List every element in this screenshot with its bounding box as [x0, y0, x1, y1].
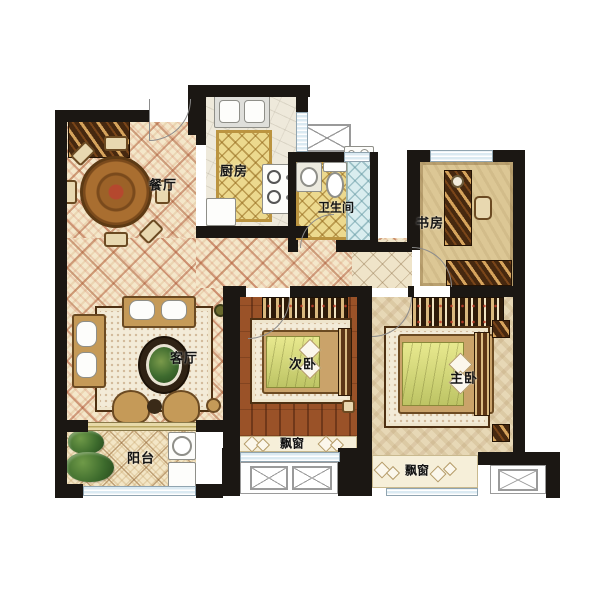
- wall: [196, 484, 223, 498]
- armchair: [112, 390, 150, 424]
- sofa-cushion: [76, 321, 97, 347]
- room-label-bay-window-master: 飘窗: [405, 462, 429, 479]
- wall: [450, 286, 513, 297]
- nightstand: [492, 320, 510, 338]
- master-bay-window: [386, 488, 478, 496]
- sofa-cushion: [161, 300, 187, 320]
- second-bed-headboard: [338, 328, 352, 396]
- wall: [240, 286, 246, 297]
- wall: [55, 420, 88, 432]
- wall: [407, 152, 420, 250]
- kitchen-cabinet: [206, 198, 236, 226]
- wall: [196, 97, 206, 145]
- kitchen-sink-basin: [219, 100, 240, 123]
- floor-plan: 餐厅 厨房 卫生间 书房 客厅 次卧 主卧 阳台 飘窗 飘窗: [0, 0, 600, 600]
- room-label-bathroom: 卫生间: [318, 199, 354, 216]
- dining-chair: [104, 232, 128, 247]
- plant-icon: [68, 430, 104, 454]
- room-label-dining: 餐厅: [149, 175, 177, 194]
- second-bay-window: [240, 452, 340, 462]
- bathroom-window: [344, 152, 370, 162]
- wall: [370, 242, 412, 252]
- kitchen-sink-basin: [244, 100, 265, 123]
- washbasin-icon: [300, 167, 318, 187]
- wall: [513, 150, 525, 465]
- kitchen-window: [296, 112, 308, 152]
- dining-chair: [104, 136, 128, 151]
- wall: [288, 152, 344, 162]
- master-bedroom-wardrobe: [412, 297, 504, 327]
- ac-unit-x-icon: [250, 466, 288, 490]
- wall: [357, 286, 372, 496]
- dining-table: [80, 156, 152, 228]
- stool: [206, 398, 221, 413]
- mop-sink-basin: [172, 436, 192, 456]
- wall: [222, 448, 240, 496]
- ac-unit-x-icon: [292, 466, 332, 490]
- toilet-tank: [323, 162, 347, 172]
- room-label-master-bedroom: 主卧: [450, 368, 478, 387]
- desk-lamp-icon: [451, 175, 464, 188]
- toilet-icon: [326, 172, 344, 198]
- nightstand: [342, 400, 355, 413]
- sofa-cushion: [129, 300, 155, 320]
- wall: [55, 484, 83, 498]
- room-label-study: 书房: [416, 213, 444, 232]
- room-label-bay-window-second: 飘窗: [280, 435, 304, 452]
- wall: [188, 85, 310, 97]
- wall: [546, 452, 560, 498]
- ac-unit-x-icon: [498, 469, 538, 491]
- wall: [55, 110, 67, 496]
- burner-icon: [267, 190, 281, 204]
- wall: [55, 110, 150, 122]
- sofa-cushion: [76, 352, 97, 378]
- room-label-second-bedroom: 次卧: [289, 354, 317, 373]
- balcony-window: [83, 486, 196, 496]
- room-label-balcony: 阳台: [127, 448, 155, 467]
- wall: [370, 152, 378, 252]
- side-table: [147, 399, 162, 414]
- study-chair: [474, 196, 492, 220]
- nightstand: [492, 424, 510, 442]
- wall: [288, 162, 296, 248]
- plant-icon: [66, 452, 114, 482]
- study-window: [430, 150, 493, 162]
- wall: [338, 448, 358, 496]
- wall: [288, 240, 298, 252]
- room-label-living: 客厅: [170, 348, 198, 367]
- burner-icon: [267, 170, 281, 184]
- washing-machine-icon: [168, 462, 196, 488]
- wall: [196, 420, 223, 432]
- study-cabinet: [446, 260, 512, 286]
- wall: [408, 286, 414, 297]
- balcony-sliding-door: [88, 422, 196, 431]
- room-label-kitchen: 厨房: [220, 161, 248, 180]
- wall: [296, 97, 308, 113]
- armchair: [162, 390, 200, 424]
- wall: [407, 150, 430, 162]
